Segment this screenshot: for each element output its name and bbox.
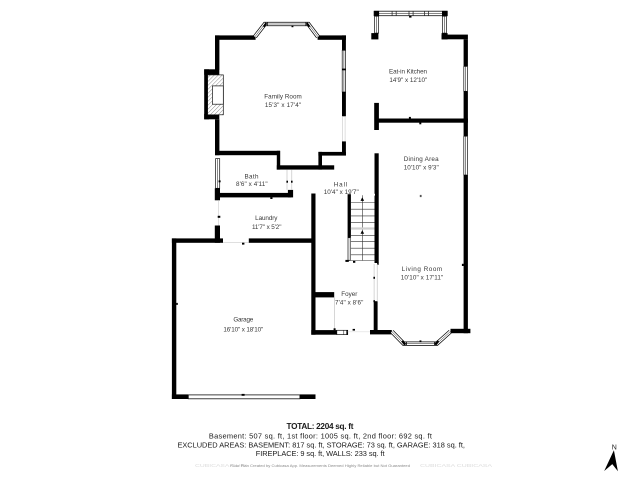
svg-text:Foyer: Foyer xyxy=(341,291,357,298)
svg-text:Family Room: Family Room xyxy=(264,93,302,100)
svg-text:Dining Area: Dining Area xyxy=(404,156,439,163)
svg-text:FIREPLACE: 9 sq. ft, WALLS: 23: FIREPLACE: 9 sq. ft, WALLS: 233 sq. ft xyxy=(256,449,385,458)
svg-text:16'10" x 18'10": 16'10" x 18'10" xyxy=(223,326,263,333)
svg-text:Basement: 507 sq. ft, 1st floo: Basement: 507 sq. ft, 1st floor: 1005 sq… xyxy=(209,432,432,441)
svg-text:11'7" x 5'2": 11'7" x 5'2" xyxy=(252,224,282,231)
svg-text:Eat-in Kitchen: Eat-in Kitchen xyxy=(389,68,427,75)
svg-text:Laundry: Laundry xyxy=(255,215,278,222)
svg-text:Living Room: Living Room xyxy=(402,266,443,273)
svg-text:Hall: Hall xyxy=(334,182,348,189)
svg-text:Floor Plan Created by Cubicasa: Floor Plan Created by Cubicasa App. Meas… xyxy=(230,464,410,468)
svg-text:CUBICASA CUBICASA: CUBICASA CUBICASA xyxy=(420,463,493,468)
svg-text:10'10" x 17'11": 10'10" x 17'11" xyxy=(401,274,444,281)
svg-text:TOTAL: 2204 sq. ft: TOTAL: 2204 sq. ft xyxy=(287,422,354,431)
svg-text:7'4" x 8'6": 7'4" x 8'6" xyxy=(335,300,363,307)
svg-text:15'3" x 17'4": 15'3" x 17'4" xyxy=(265,102,301,109)
svg-text:14'9" x 12'10": 14'9" x 12'10" xyxy=(389,77,427,84)
svg-text:10'4" x 19'7": 10'4" x 19'7" xyxy=(324,189,359,196)
svg-text:Garage: Garage xyxy=(233,317,253,324)
svg-text:N: N xyxy=(612,445,617,452)
svg-text:Bath: Bath xyxy=(245,173,259,180)
svg-text:10'10" x 9'3": 10'10" x 9'3" xyxy=(404,165,439,172)
svg-text:8'6" x 4'11": 8'6" x 4'11" xyxy=(236,181,268,188)
